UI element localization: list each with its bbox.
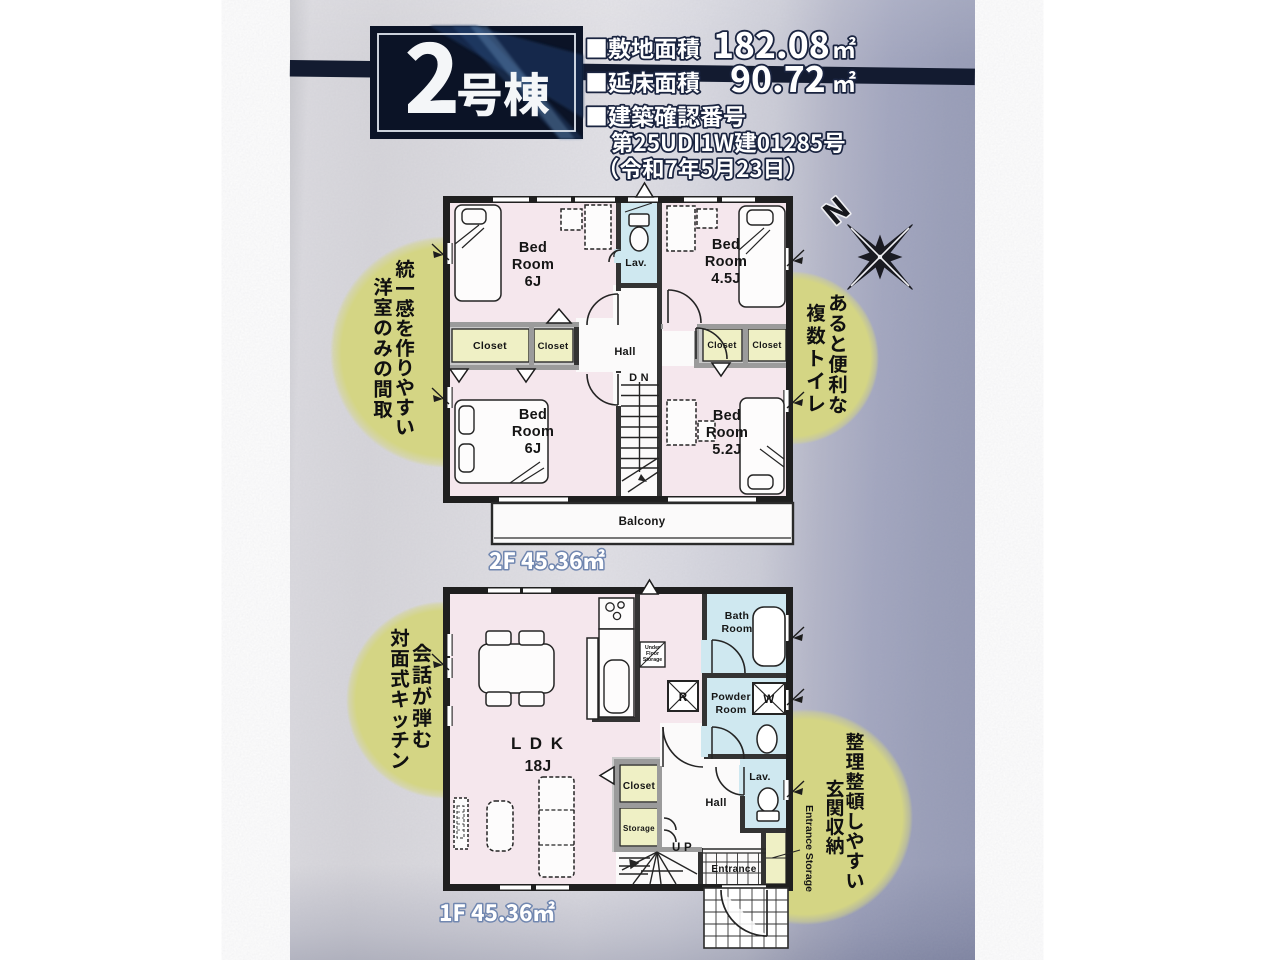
svg-text:18J: 18J: [525, 758, 552, 775]
svg-text:Room: Room: [512, 257, 554, 273]
svg-text:Entrance: Entrance: [711, 864, 756, 875]
svg-text:Bed: Bed: [519, 407, 547, 423]
svg-text:Room: Room: [722, 623, 753, 635]
svg-text:Lav.: Lav.: [749, 771, 770, 783]
svg-text:U P: U P: [672, 842, 692, 854]
svg-text:Closet: Closet: [623, 781, 656, 792]
svg-text:4.5J: 4.5J: [711, 271, 740, 287]
svg-text:Storage: Storage: [643, 657, 662, 663]
svg-text:Powder: Powder: [711, 691, 751, 703]
svg-text:Balcony: Balcony: [619, 516, 666, 528]
svg-text:Room: Room: [705, 254, 747, 270]
svg-text:Bed: Bed: [712, 237, 740, 253]
svg-text:Storage: Storage: [623, 824, 655, 833]
svg-text:5.2J: 5.2J: [712, 442, 741, 458]
svg-text:Room: Room: [706, 425, 748, 441]
svg-text:L D K: L D K: [511, 734, 565, 753]
svg-text:Closet: Closet: [752, 340, 781, 350]
svg-text:6J: 6J: [525, 441, 542, 457]
svg-text:W: W: [763, 694, 774, 706]
svg-text:Room: Room: [512, 424, 554, 440]
svg-text:Bed: Bed: [713, 408, 741, 424]
svg-text:R: R: [679, 692, 688, 704]
svg-text:Bed: Bed: [519, 240, 547, 256]
svg-text:Entrance Storage: Entrance Storage: [803, 805, 815, 892]
svg-text:Hall: Hall: [614, 346, 635, 358]
svg-text:Closet: Closet: [538, 341, 569, 352]
svg-text:Closet: Closet: [707, 340, 736, 350]
svg-text:Hall: Hall: [705, 797, 726, 809]
svg-text:6J: 6J: [525, 274, 542, 290]
svg-text:Bath: Bath: [725, 610, 750, 622]
svg-text:Closet: Closet: [473, 340, 507, 352]
svg-text:D N: D N: [629, 372, 649, 384]
svg-text:Room: Room: [716, 704, 747, 716]
svg-text:Lav.: Lav.: [625, 257, 646, 269]
